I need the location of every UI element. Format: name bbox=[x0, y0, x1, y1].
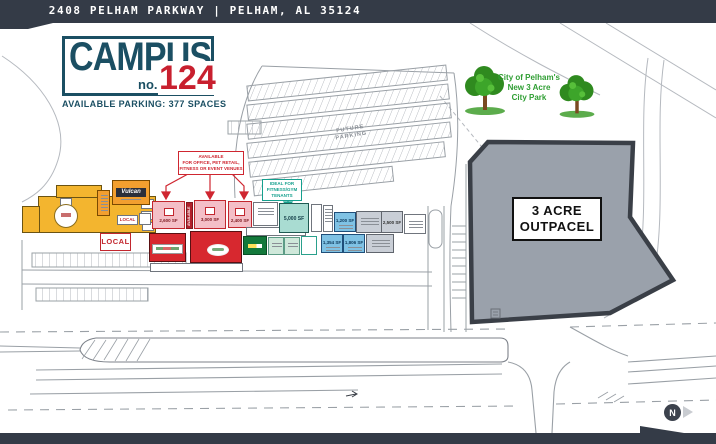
stairwell bbox=[323, 205, 333, 232]
fitness-callout: IDEAL FOR FITNESS/GYM TENANTS bbox=[262, 179, 302, 201]
suite-local-small: LOCAL bbox=[117, 215, 138, 225]
median-island bbox=[80, 338, 508, 362]
suite-icon bbox=[164, 208, 174, 216]
suite-gray-c bbox=[366, 234, 394, 253]
suite-vulcan: Vulcan bbox=[112, 180, 150, 205]
tenant-green bbox=[243, 236, 267, 255]
suite-available-sliver: AVAILABLE bbox=[186, 202, 193, 229]
suite-blue-a: 1,200 SF bbox=[334, 212, 356, 232]
local-logo: LOCAL bbox=[118, 217, 137, 222]
suite-local-large: LOCAL bbox=[100, 233, 131, 251]
available-callout: AVAILABLE FOR OFFICE, PET RETAIL, FITNES… bbox=[178, 151, 244, 175]
suite-available-a: 2,600 SF bbox=[152, 201, 185, 229]
campus-logo-no: no. bbox=[136, 77, 160, 92]
site-plan-flyer: 2408 PELHAM PARKWAY | PELHAM, AL 35124 C… bbox=[0, 0, 716, 444]
campus-logo-number: 124 bbox=[158, 61, 218, 95]
available-parking-tagline: AVAILABLE PARKING: 377 SPACES bbox=[62, 99, 226, 109]
highway bbox=[0, 323, 716, 433]
vulcan-logo: Vulcan bbox=[116, 188, 146, 197]
city-park-line: City of Pelham's bbox=[494, 73, 564, 83]
suite-blue-b: 1,354 SF bbox=[321, 234, 343, 253]
building-room bbox=[139, 213, 151, 225]
tenant-red-west bbox=[149, 233, 186, 262]
local-logo: LOCAL bbox=[101, 237, 130, 246]
bottom-banner bbox=[0, 433, 716, 444]
suite-vulcan-small bbox=[97, 190, 110, 216]
city-park-line: New 3 Acre bbox=[494, 83, 564, 93]
tenant-logo-emblem bbox=[54, 204, 78, 228]
tenant-logo-band bbox=[152, 244, 183, 254]
suite-gray-a bbox=[356, 211, 382, 233]
building-yellow-annex bbox=[22, 206, 40, 233]
building-room bbox=[253, 202, 278, 226]
suite-blue-c: 1,806 SF bbox=[343, 234, 365, 253]
tenant-red-east bbox=[190, 231, 242, 263]
suite-teal-outline bbox=[301, 236, 317, 255]
city-park-label: City of Pelham's New 3 Acre City Park bbox=[494, 73, 564, 103]
city-park-line: City Park bbox=[494, 93, 564, 103]
suite-icon bbox=[235, 208, 245, 216]
suite-white-end bbox=[404, 214, 426, 234]
tenant-logo-oval bbox=[207, 244, 229, 256]
suite-gray-b: 2,500 SF bbox=[381, 211, 403, 233]
building-room bbox=[311, 204, 322, 232]
address-text: 2408 PELHAM PARKWAY | PELHAM, AL 35124 bbox=[0, 4, 410, 17]
building-yellow-top bbox=[56, 185, 102, 198]
building-service-strip bbox=[150, 263, 243, 272]
suite-gym: 5,000 SF bbox=[279, 203, 309, 233]
north-compass: N bbox=[664, 404, 681, 421]
suite-mint-a bbox=[268, 237, 284, 255]
north-label: N bbox=[669, 408, 676, 418]
suite-available-b: 3,000 SF bbox=[194, 200, 226, 229]
outparcel-label: 3 ACRE OUTPACEL bbox=[512, 197, 602, 241]
suite-icon bbox=[205, 207, 215, 215]
compass-arrow-icon bbox=[683, 406, 693, 418]
suite-available-c: 2,400 SF bbox=[228, 201, 252, 228]
suite-mint-b bbox=[284, 237, 300, 255]
tenant-logo-dash bbox=[248, 244, 262, 248]
